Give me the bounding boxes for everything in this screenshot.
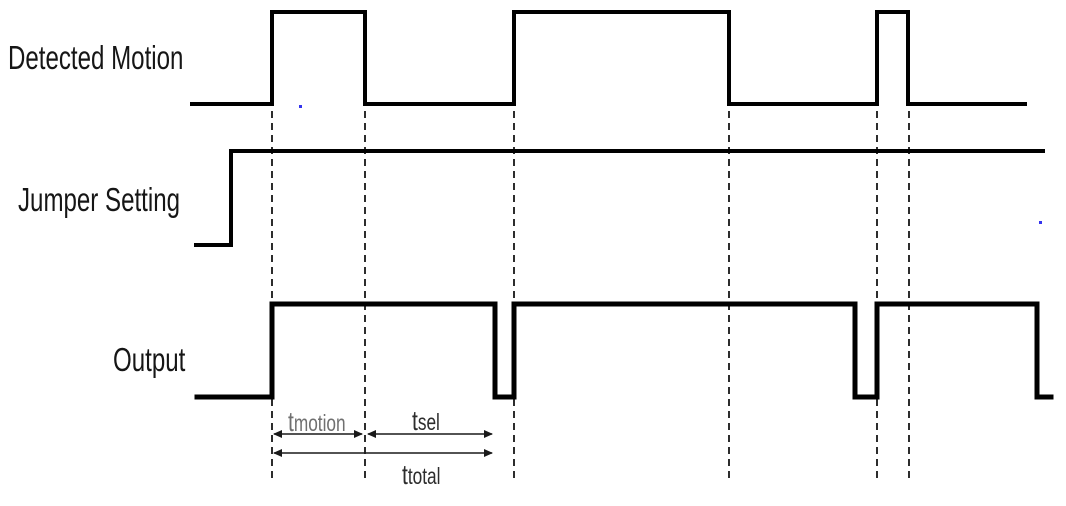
blue-dot-2 — [1039, 221, 1042, 224]
label-t-sel: tsel — [412, 407, 440, 435]
time-guides — [272, 111, 909, 481]
label-t-motion: tmotion — [288, 408, 346, 436]
t-sel-sub: sel — [418, 409, 440, 435]
blue-dot-1 — [299, 105, 302, 108]
t-motion-sub: motion — [294, 410, 346, 436]
label-t-total: ttotal — [402, 461, 440, 489]
waveform-jumper-setting — [196, 151, 1043, 245]
signal-label-detected-motion: Detected Motion — [8, 41, 183, 74]
stray-marks — [299, 105, 1042, 224]
t-total-sub: total — [408, 463, 441, 489]
signal-label-jumper-setting: Jumper Setting — [18, 183, 180, 216]
timing-diagram-canvas: Detected Motion Jumper Setting Output tm… — [0, 0, 1066, 506]
waveform-traces — [192, 12, 1051, 397]
waveform-output — [197, 304, 1051, 397]
dimension-arrows — [274, 434, 492, 453]
signal-label-output: Output — [113, 343, 185, 376]
waveform-detected-motion — [192, 12, 1025, 104]
